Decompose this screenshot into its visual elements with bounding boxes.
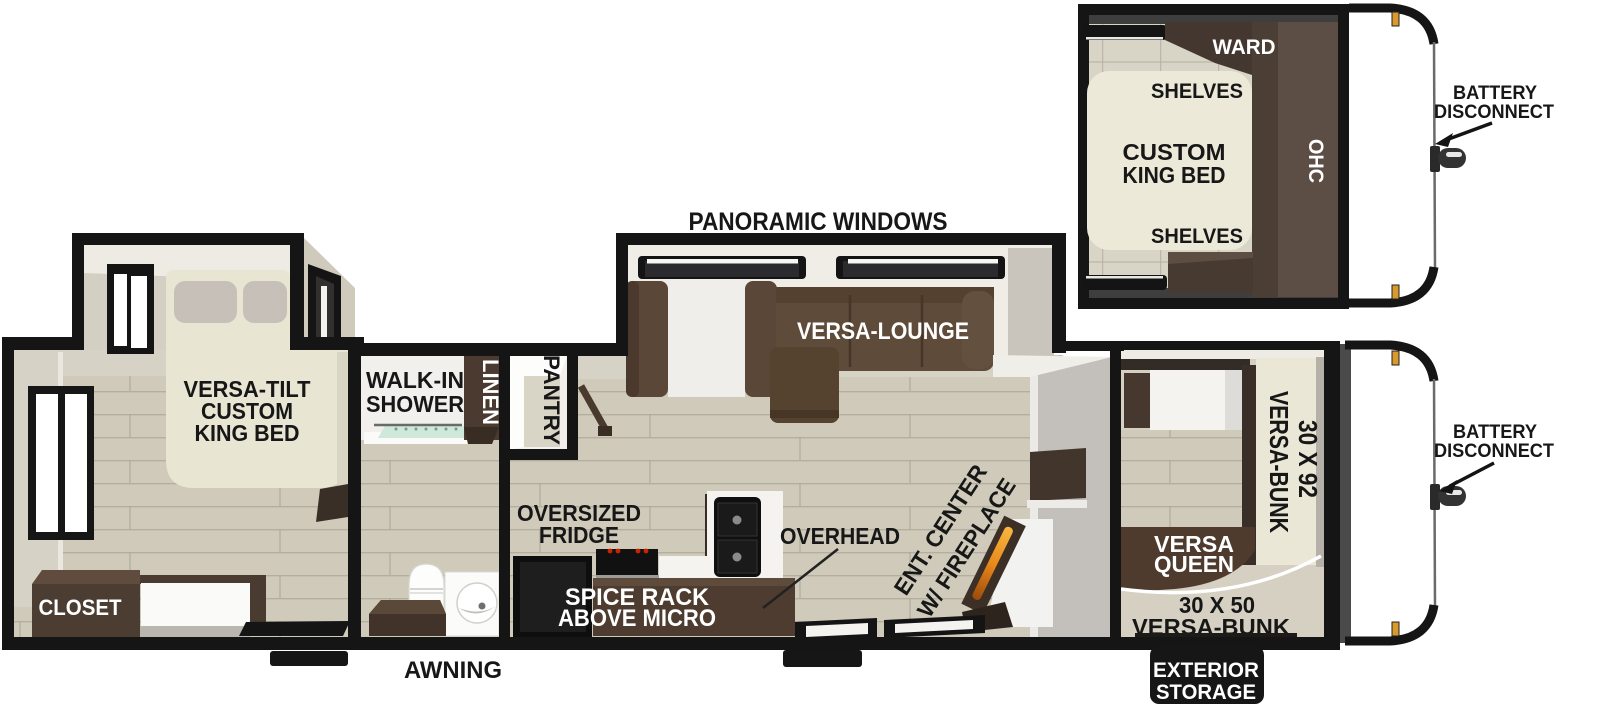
svg-text:FRIDGE: FRIDGE xyxy=(539,522,619,548)
svg-text:BATTERY: BATTERY xyxy=(1453,83,1537,104)
svg-text:OVERHEAD: OVERHEAD xyxy=(780,523,900,549)
svg-text:VERSA-BUNK: VERSA-BUNK xyxy=(1264,391,1294,533)
svg-text:WALK-IN: WALK-IN xyxy=(366,367,464,393)
svg-text:BATTERY: BATTERY xyxy=(1453,422,1537,443)
svg-text:EXTERIOR: EXTERIOR xyxy=(1153,659,1259,682)
svg-text:DISCONNECT: DISCONNECT xyxy=(1434,102,1554,123)
svg-text:QUEEN: QUEEN xyxy=(1154,551,1234,577)
svg-text:CLOSET: CLOSET xyxy=(39,595,123,620)
svg-text:PANORAMIC WINDOWS: PANORAMIC WINDOWS xyxy=(689,208,948,236)
svg-text:KING BED: KING BED xyxy=(1123,162,1226,188)
svg-text:PANTRY: PANTRY xyxy=(539,355,564,445)
svg-text:SHELVES: SHELVES xyxy=(1151,225,1243,248)
svg-text:OHC: OHC xyxy=(1304,139,1327,183)
svg-text:VERSA-LOUNGE: VERSA-LOUNGE xyxy=(797,318,969,345)
svg-text:ABOVE MICRO: ABOVE MICRO xyxy=(558,605,716,632)
svg-text:30 X 92: 30 X 92 xyxy=(1293,420,1323,498)
svg-text:SHOWER: SHOWER xyxy=(366,391,464,417)
svg-text:STORAGE: STORAGE xyxy=(1156,681,1256,704)
svg-text:AWNING: AWNING xyxy=(404,657,502,684)
svg-text:SHELVES: SHELVES xyxy=(1151,80,1243,103)
svg-text:KING BED: KING BED xyxy=(195,420,300,446)
svg-text:WARD: WARD xyxy=(1213,36,1276,59)
svg-text:DISCONNECT: DISCONNECT xyxy=(1434,441,1554,462)
